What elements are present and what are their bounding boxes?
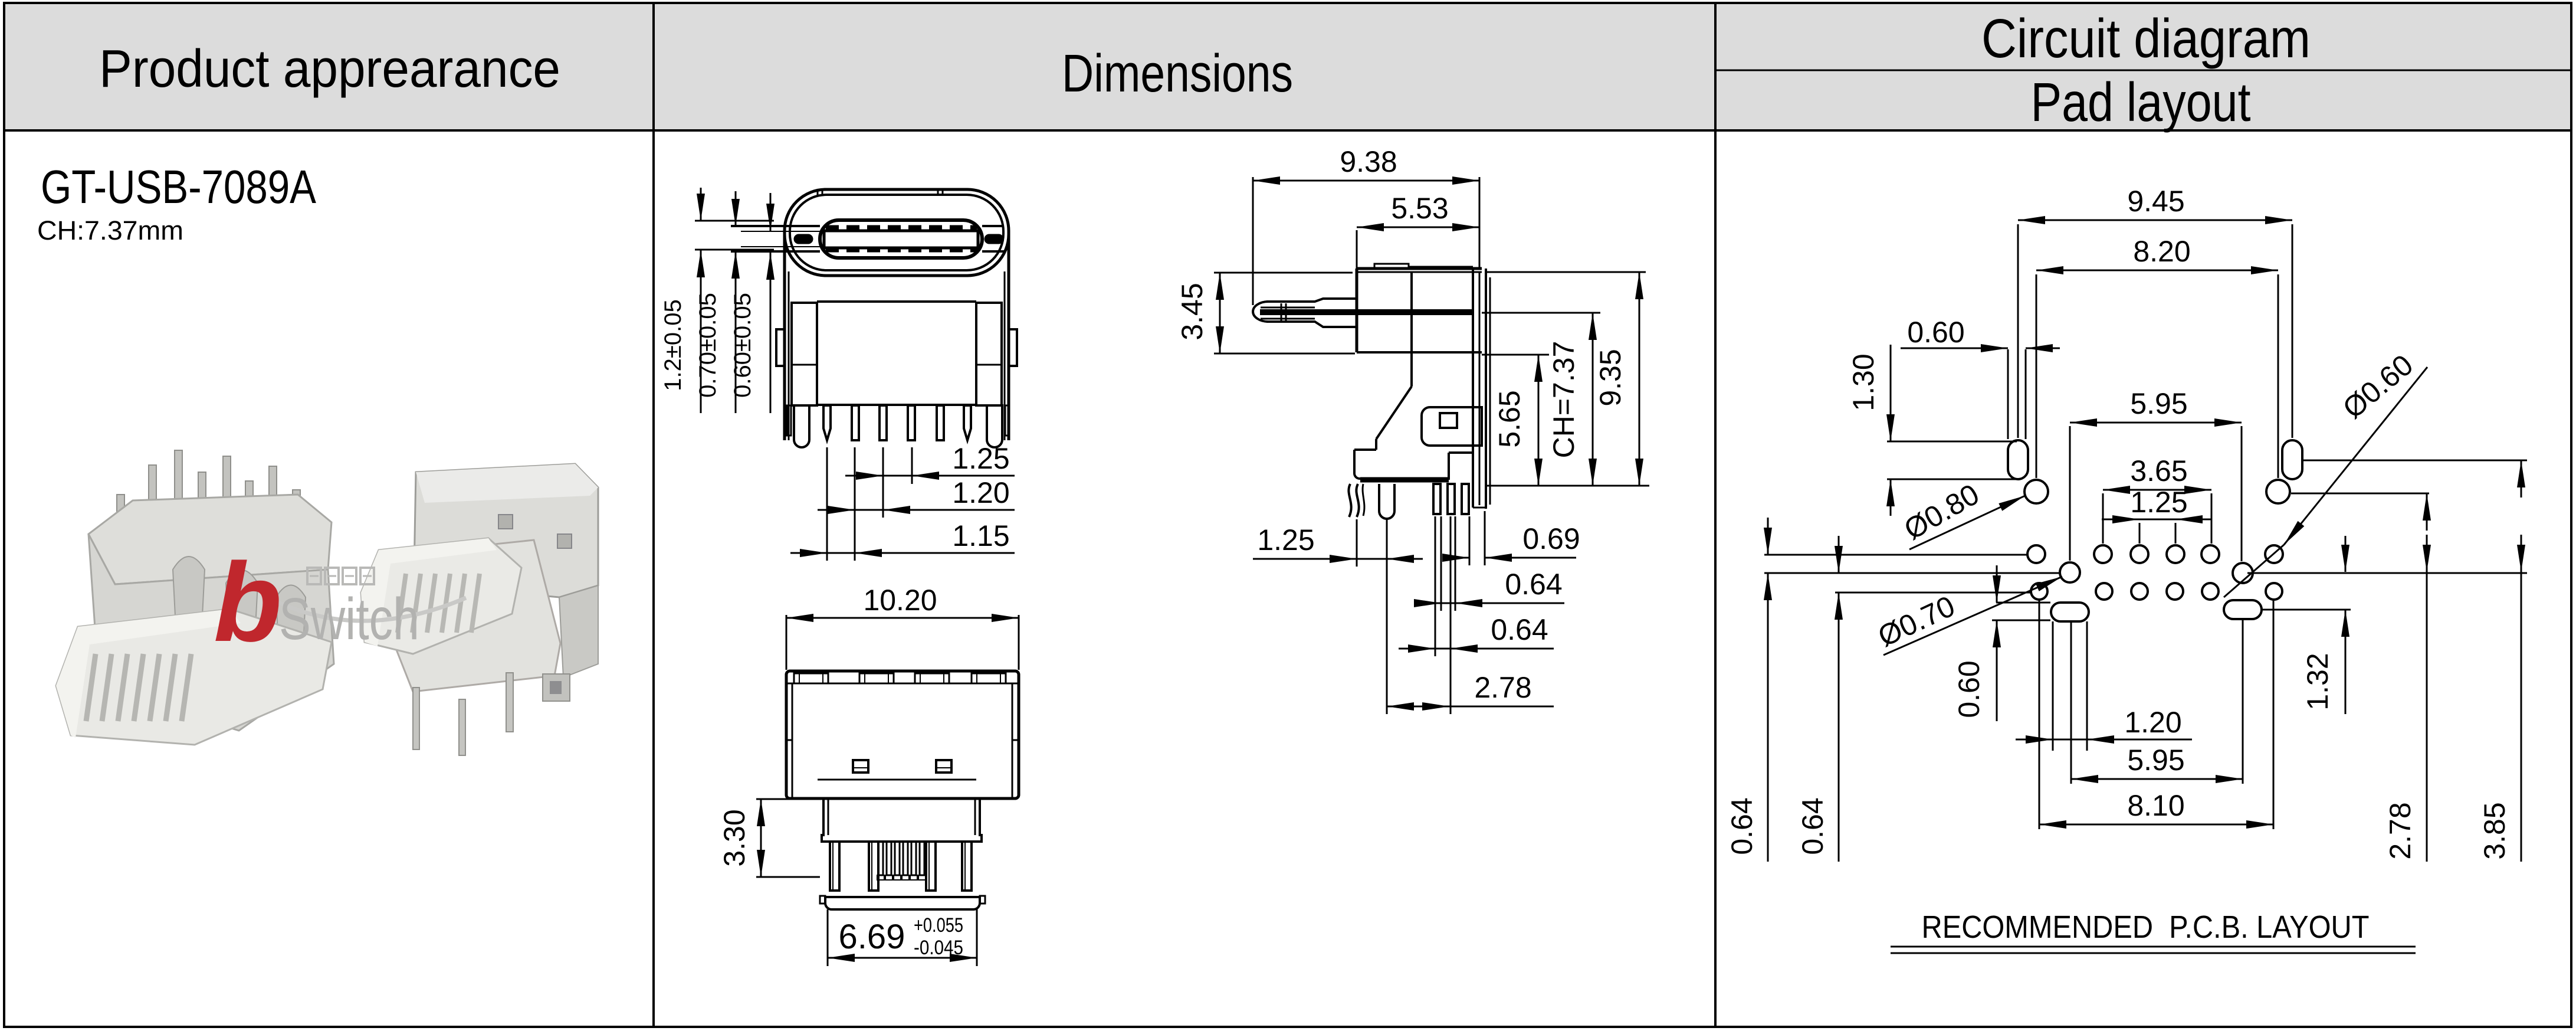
svg-text:0.64: 0.64 [1505, 568, 1562, 601]
svg-text:1.20: 1.20 [2124, 706, 2181, 739]
svg-text:Pad layout: Pad layout [2031, 71, 2251, 133]
svg-text:8.10: 8.10 [2127, 789, 2184, 822]
svg-text:5.95: 5.95 [2130, 387, 2187, 420]
svg-text:1.25: 1.25 [2130, 486, 2187, 519]
svg-text:6.69: 6.69 [839, 918, 905, 956]
svg-text:5.65: 5.65 [1493, 390, 1526, 447]
svg-text:3.85: 3.85 [2478, 802, 2511, 859]
svg-text:+0.055: +0.055 [914, 914, 963, 937]
svg-text:3.45: 3.45 [1176, 283, 1209, 340]
svg-text:CH:7.37mm: CH:7.37mm [37, 215, 183, 246]
svg-text:0.69: 0.69 [1522, 522, 1580, 555]
svg-text:5.95: 5.95 [2127, 744, 2184, 777]
svg-text:1.25: 1.25 [1257, 523, 1314, 557]
svg-text:0.60: 0.60 [1907, 316, 1964, 349]
svg-text:3.30: 3.30 [718, 809, 751, 866]
svg-text:9.45: 9.45 [2127, 185, 2184, 218]
svg-text:0.60±0.05: 0.60±0.05 [730, 293, 756, 398]
svg-text:1.30: 1.30 [1847, 354, 1880, 411]
svg-text:1.25: 1.25 [952, 442, 1009, 475]
svg-text:2.78: 2.78 [1474, 671, 1531, 704]
svg-text:1.2±0.05: 1.2±0.05 [660, 299, 686, 391]
svg-text:1.32: 1.32 [2301, 653, 2334, 710]
svg-text:Ø0.80: Ø0.80 [1899, 477, 1985, 546]
svg-text:Ø0.70: Ø0.70 [1873, 589, 1960, 653]
svg-text:9.35: 9.35 [1594, 349, 1627, 406]
svg-text:Ø0.60: Ø0.60 [2337, 348, 2419, 425]
svg-text:0.70±0.05: 0.70±0.05 [695, 293, 721, 398]
svg-text:Circuit diagram: Circuit diagram [1981, 8, 2311, 69]
svg-text:0.64: 0.64 [1796, 797, 1829, 855]
svg-text:1.15: 1.15 [952, 519, 1009, 552]
svg-text:0.64: 0.64 [1725, 797, 1758, 855]
svg-text:b: b [214, 540, 282, 665]
svg-text:GT-USB-7089A: GT-USB-7089A [41, 161, 317, 213]
svg-text:-0.045: -0.045 [914, 937, 963, 959]
svg-text:9.38: 9.38 [1340, 145, 1397, 178]
svg-text:Dimensions: Dimensions [1062, 44, 1293, 103]
svg-text:2.78: 2.78 [2384, 802, 2417, 859]
svg-text:Switch: Switch [279, 586, 419, 652]
svg-text:0.60: 0.60 [1952, 660, 1986, 718]
svg-text:1.20: 1.20 [952, 476, 1009, 509]
svg-text:RECOMMENDED P.C.B. LAYOUT: RECOMMENDED P.C.B. LAYOUT [1922, 909, 2370, 945]
svg-text:0.64: 0.64 [1491, 613, 1548, 646]
svg-text:CH=7.37: CH=7.37 [1547, 341, 1580, 459]
svg-text:3.65: 3.65 [2130, 454, 2187, 487]
svg-text:8.20: 8.20 [2133, 235, 2190, 268]
svg-text:Product apprearance: Product apprearance [99, 40, 560, 99]
svg-text:5.53: 5.53 [1391, 192, 1448, 225]
svg-text:10.20: 10.20 [863, 584, 937, 617]
